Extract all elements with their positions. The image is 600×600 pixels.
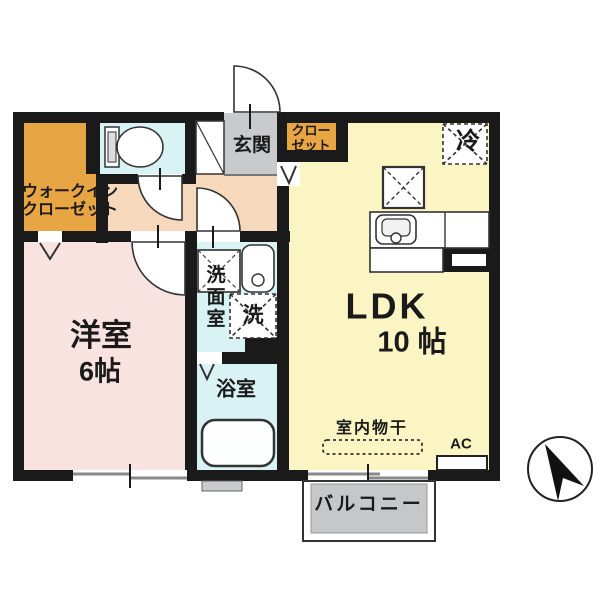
bath-doorway-gap xyxy=(197,352,222,364)
wall-bottom-3 xyxy=(428,470,500,481)
wic-opening-gap xyxy=(38,231,62,242)
wall-left xyxy=(13,112,24,481)
shoe-cabinet-icon xyxy=(196,121,224,174)
wall-bottom-2 xyxy=(187,470,308,481)
wall-bath-top xyxy=(222,352,277,364)
indoor-drying-label: 室内物干 xyxy=(336,420,408,438)
refrigerator-label: 冷 xyxy=(456,128,480,156)
toilet-icon xyxy=(105,127,163,167)
wall-bedroom-wetrooms xyxy=(185,231,197,470)
wall-corridor-ldk xyxy=(277,186,289,242)
ac-unit-box xyxy=(437,456,487,470)
balcony-label: バルコニー xyxy=(314,494,424,516)
ldk-size-label: 10 帖 xyxy=(377,326,446,359)
wall-closet-right xyxy=(336,112,348,162)
floor-plan: ウォークイン クローゼット 玄関 クロー ゼット 冷 LDK 10 帖 洋室 6… xyxy=(0,0,600,600)
entrance-label: 玄関 xyxy=(233,135,271,157)
bedroom-size-label: 6帖 xyxy=(79,356,121,387)
wall-wetrooms-ldk xyxy=(277,242,289,470)
washing-machine-label: 洗 xyxy=(243,304,264,328)
ac-label: AC xyxy=(450,435,472,452)
bedroom-label: 洋室 xyxy=(70,318,132,354)
washroom-label: 洗 面 室 xyxy=(206,265,225,331)
wall-wic-toilet xyxy=(86,112,100,174)
bathroom-label: 浴室 xyxy=(216,379,256,402)
wall-mid-2 xyxy=(62,231,131,242)
storage-box-icon xyxy=(383,167,424,208)
water-heater-box xyxy=(202,481,242,491)
wall-mid-1 xyxy=(24,231,38,242)
closet-label: クロー ゼット xyxy=(291,124,330,154)
washbasin-icon xyxy=(242,245,274,292)
compass-icon xyxy=(528,437,592,501)
walk-in-closet-label: ウォークイン クローゼット xyxy=(22,184,118,221)
entrance-door-swing xyxy=(234,66,280,112)
wall-bottom-1 xyxy=(13,470,73,481)
floor-plan-drawing xyxy=(0,0,600,600)
bathtub-icon xyxy=(202,420,274,466)
ldk-room-label: LDK xyxy=(346,285,429,326)
washroom-doorway-gap xyxy=(197,231,240,242)
wall-right xyxy=(489,112,500,481)
wall-toilet-bottom-left xyxy=(96,174,138,184)
wall-toilet-right xyxy=(185,112,196,184)
kitchen-stub-slot xyxy=(452,254,486,266)
wall-top-right xyxy=(280,112,500,123)
